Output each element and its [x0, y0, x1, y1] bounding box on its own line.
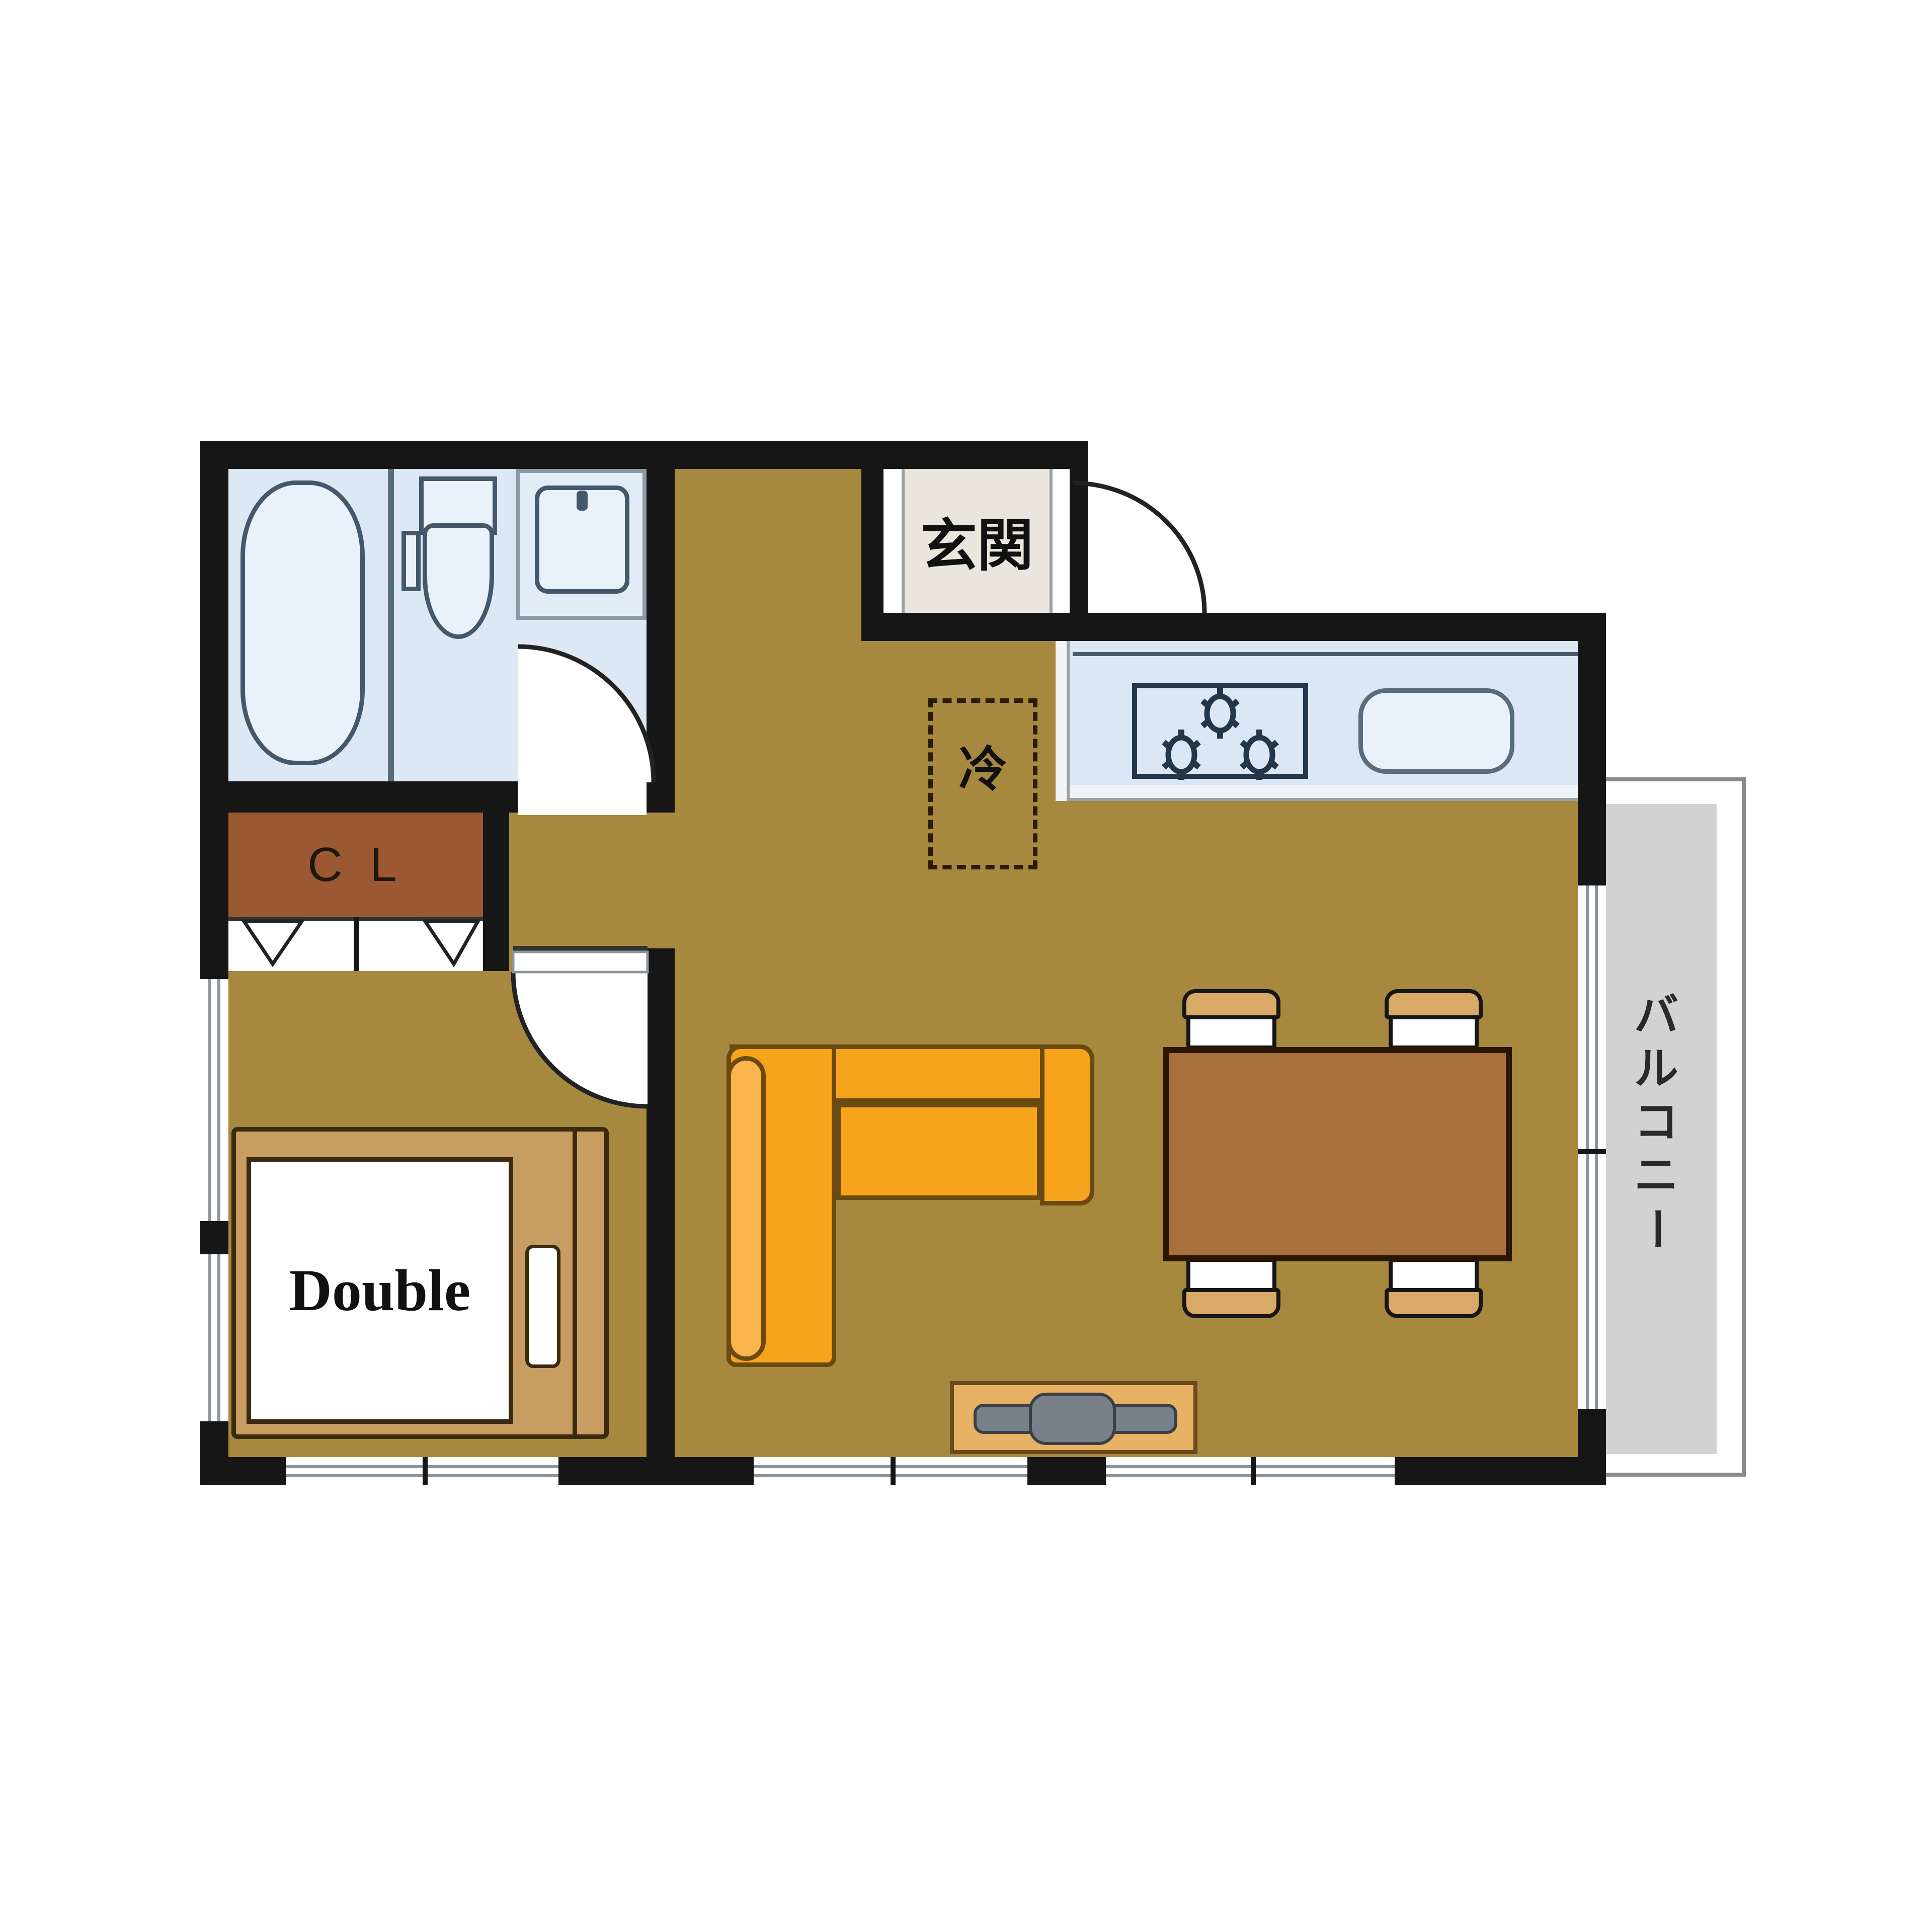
sofa-seat	[836, 1103, 1041, 1200]
bed-mattress: Double	[247, 1157, 513, 1424]
dining-chair	[1182, 1258, 1280, 1318]
floor-plan: バルコニー 玄関 冷 C L	[0, 0, 1932, 1932]
sofa-armrest-left	[727, 1056, 766, 1361]
chair-back-icon	[1182, 989, 1280, 1019]
entrance-door-arc-icon	[1073, 483, 1204, 613]
dining-table	[1163, 1047, 1512, 1261]
bedroom-door-leaf-icon	[513, 952, 648, 972]
chair-back-icon	[1182, 1288, 1280, 1318]
bifold-door-icon	[425, 921, 478, 964]
chair-back-icon	[1385, 1288, 1483, 1318]
dining-chair	[1385, 989, 1483, 1050]
bed-pillow-icon	[525, 1245, 560, 1368]
tv-icon-center	[1029, 1393, 1116, 1445]
sofa-armrest-right	[1040, 1044, 1094, 1205]
chair-back-icon	[1385, 989, 1483, 1019]
dining-chair	[1182, 989, 1280, 1050]
stove-burner-icon	[1164, 688, 1277, 780]
bifold-door-icon	[244, 921, 302, 964]
chair-seat-icon	[1186, 1258, 1276, 1292]
chair-seat-icon	[1389, 1258, 1479, 1292]
dining-chair	[1385, 1258, 1483, 1318]
bed-headboard-seam	[573, 1127, 577, 1439]
chair-seat-icon	[1186, 1015, 1276, 1050]
plan-symbols	[0, 0, 1932, 1932]
chair-seat-icon	[1389, 1015, 1479, 1050]
